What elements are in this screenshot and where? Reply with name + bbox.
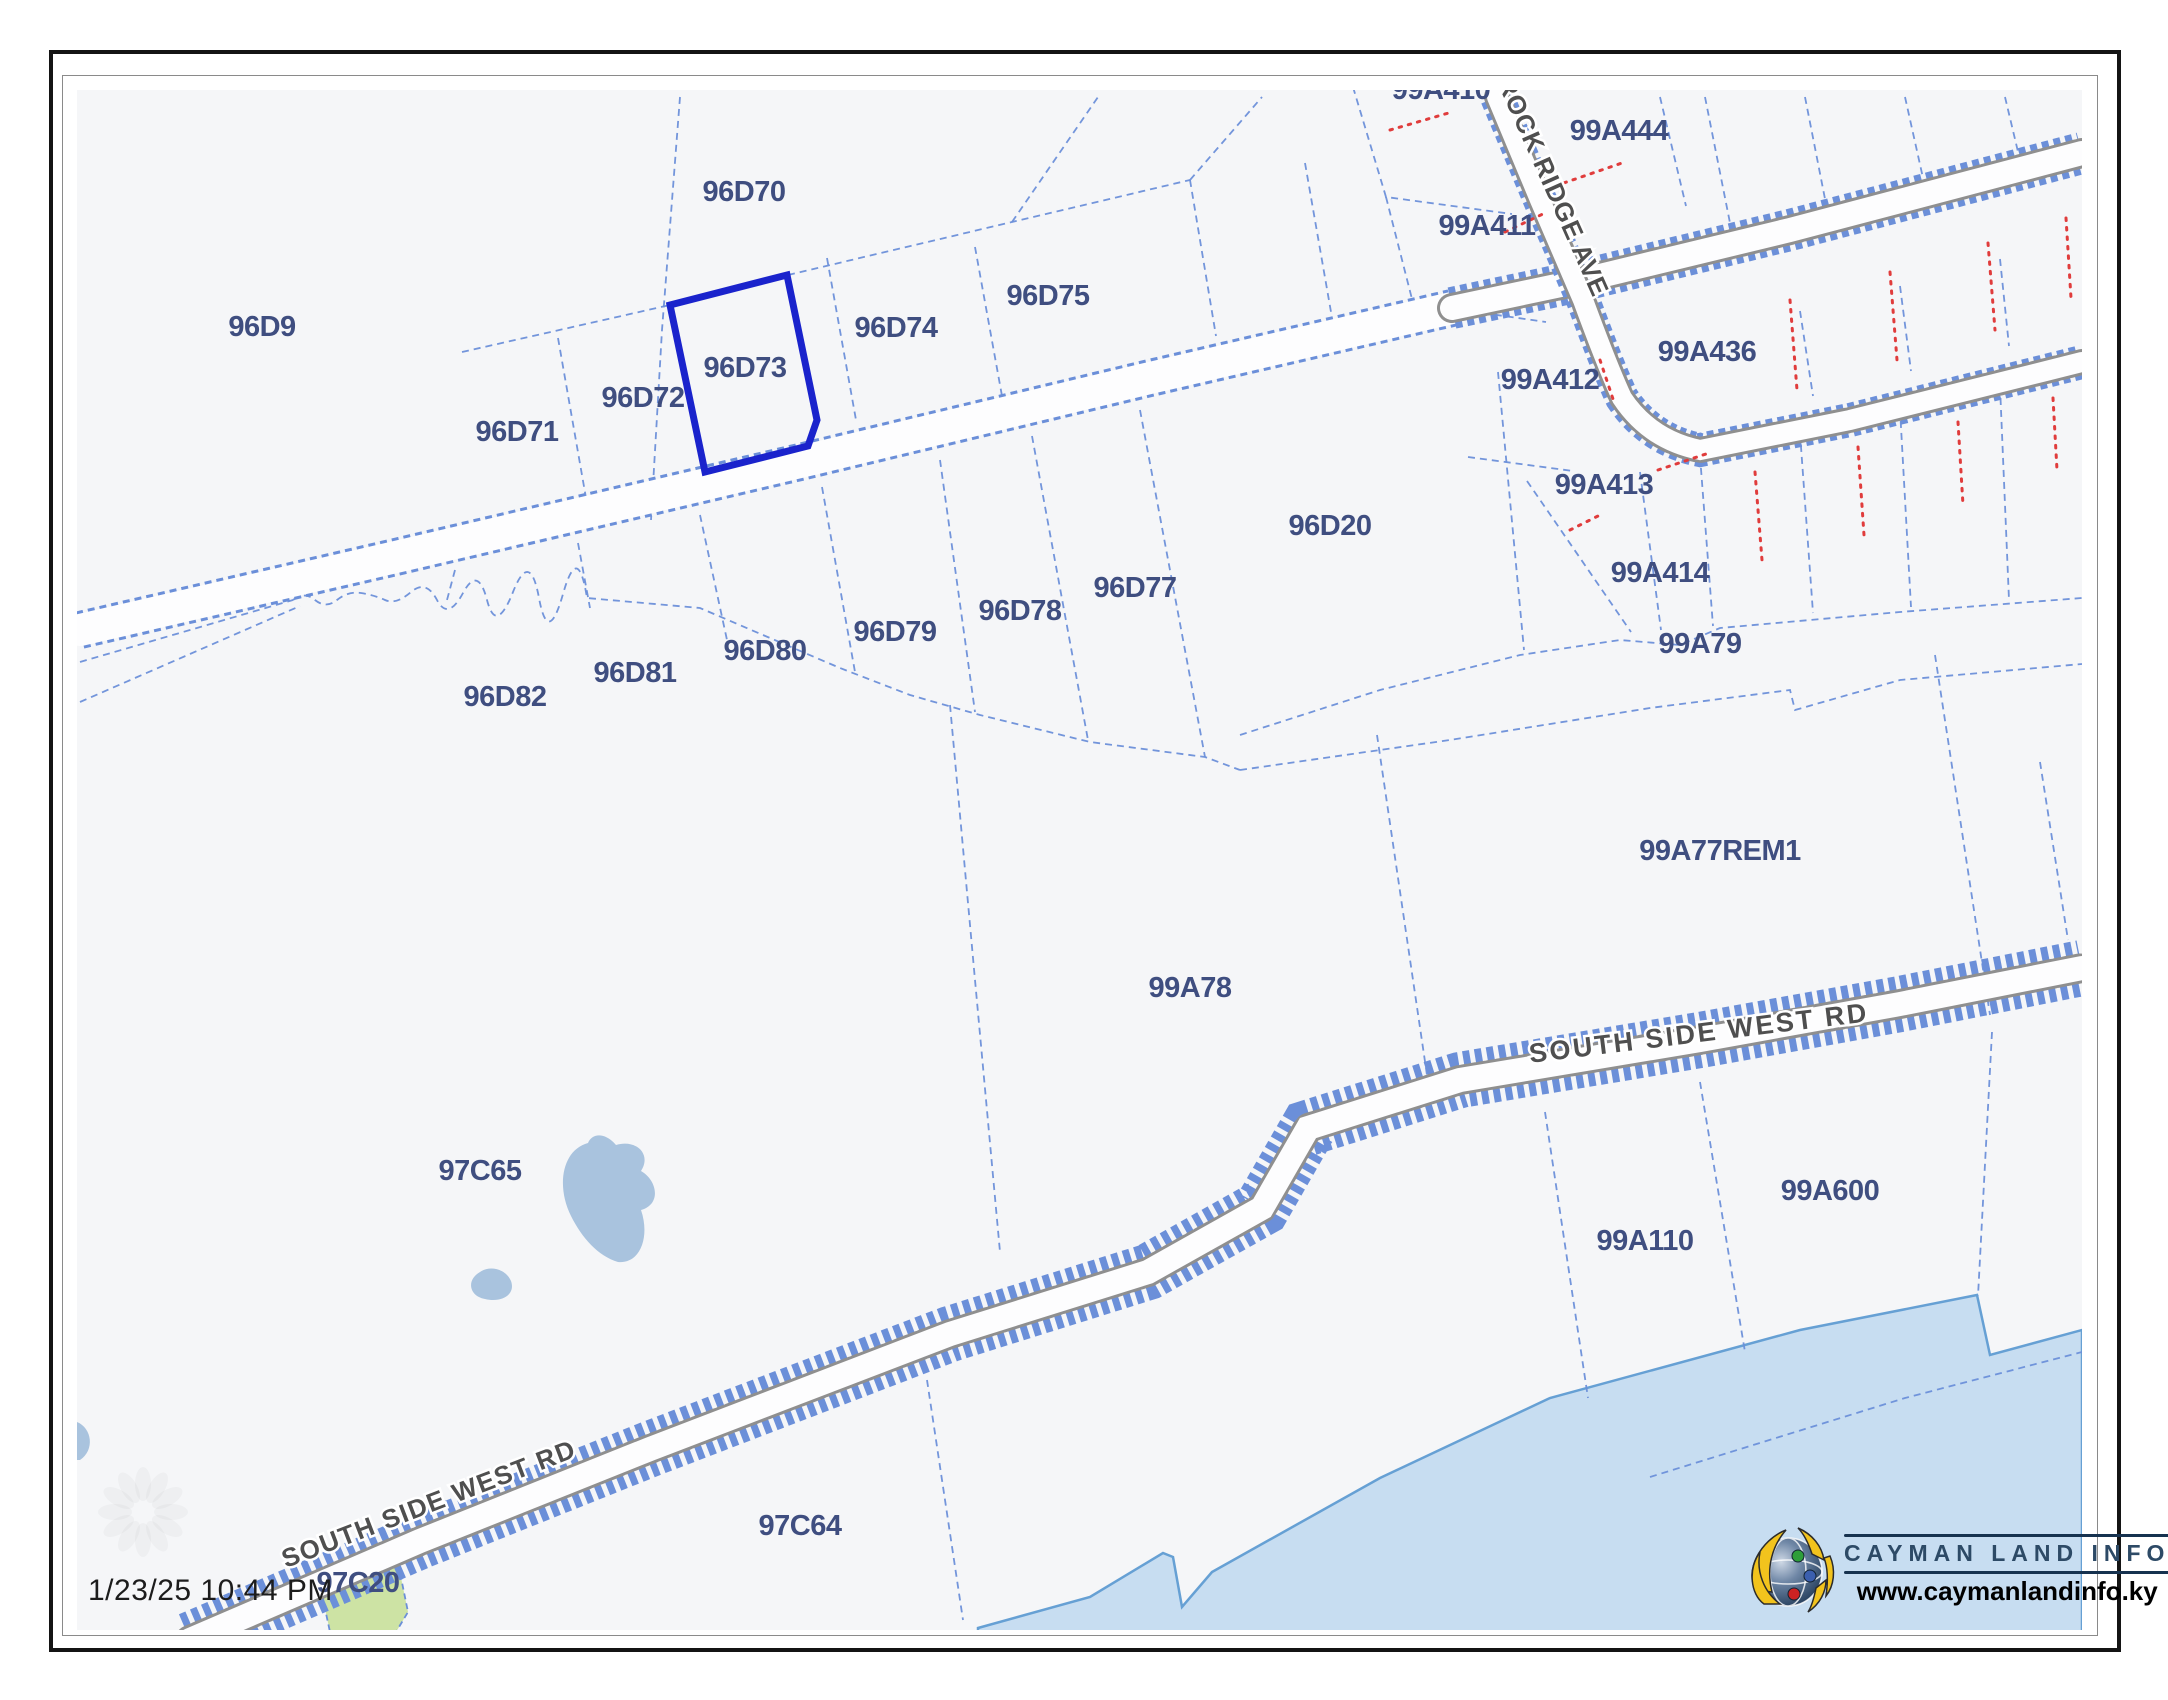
parcel-boundary	[1190, 180, 1216, 336]
parcel-label-96D74: 96D74	[855, 312, 938, 344]
pond	[563, 1135, 655, 1262]
parcel-label-99A411: 99A411	[1439, 210, 1536, 242]
parcel-label-96D71: 96D71	[476, 416, 559, 448]
map-timestamp: 1/23/25 10:44 PM	[88, 1574, 333, 1608]
parcel-label-96D9: 96D9	[228, 311, 296, 343]
parcel-boundary	[1240, 598, 2082, 735]
parcel-boundary	[1377, 735, 1428, 1082]
parcel-label-99A436: 99A436	[1658, 336, 1757, 368]
red-dotted-line	[1570, 515, 1600, 530]
logo-url[interactable]: www.caymanlandinfo.ky	[1844, 1574, 2168, 1607]
parcel-label-96D80: 96D80	[724, 635, 807, 667]
parcel-label-96D75: 96D75	[1007, 280, 1090, 312]
red-dotted-line	[1958, 422, 1963, 505]
parcel-label-99A414: 99A414	[1611, 557, 1710, 589]
parcel-boundary	[578, 543, 590, 608]
parcel-boundary	[1978, 1032, 1992, 1296]
parcel-label-99A412: 99A412	[1501, 364, 1600, 396]
parcel-boundary	[1012, 97, 1098, 222]
parcel-label-96D79: 96D79	[854, 616, 937, 648]
parcel-boundary	[950, 705, 1000, 1252]
globe-icon	[1742, 1520, 1838, 1620]
parcel-label-99A77REM1: 99A77REM1	[1639, 835, 1801, 867]
parcel-boundary	[2005, 97, 2019, 156]
parcel-label-96D81: 96D81	[594, 657, 677, 689]
parcel-label-96D82: 96D82	[464, 681, 547, 713]
red-dotted-line	[1988, 243, 1995, 330]
parcel-boundary	[1700, 456, 1713, 626]
red-dotted-line	[1790, 300, 1797, 390]
red-dotted-line	[1755, 472, 1762, 560]
parcel-boundary	[927, 1380, 963, 1620]
red-dotted-line	[2053, 398, 2057, 470]
parcel-label-96D78: 96D78	[979, 595, 1062, 627]
parcel-boundary	[558, 338, 586, 498]
red-dotted-line	[1890, 272, 1897, 360]
red-dotted-line	[1858, 447, 1864, 535]
pond	[471, 1269, 512, 1300]
parcel-boundary	[1190, 97, 1262, 180]
parcel-boundary	[1545, 1112, 1588, 1398]
parcel-label-96D77: 96D77	[1094, 572, 1177, 604]
parcel-boundary	[788, 180, 1190, 275]
red-dotted-line	[2066, 218, 2071, 298]
parcel-label-97C64: 97C64	[759, 1510, 842, 1542]
cadastral-map-viewport[interactable]: 96D996D7096D7196D7296D7396D7496D7596D209…	[77, 90, 2082, 1630]
parcel-boundary	[462, 305, 670, 352]
logo-title: CAYMAN LAND INFO	[1844, 1537, 2168, 1571]
parcel-boundary	[1800, 433, 1813, 613]
parcel-boundary	[1032, 436, 1088, 740]
parcel-boundary	[1805, 97, 1826, 204]
parcel-boundary	[1498, 372, 1524, 650]
parcel-label-96D20: 96D20	[1289, 510, 1372, 542]
parcel-boundary	[1800, 311, 1813, 396]
red-dotted-line	[1390, 112, 1452, 130]
parcel-label-99A600: 99A600	[1781, 1175, 1880, 1207]
parcel-label-99A444: 99A444	[1570, 115, 1669, 147]
parcel-boundary	[1305, 163, 1331, 312]
parcel-boundary	[1705, 97, 1731, 228]
parcel-boundary	[1900, 409, 1911, 607]
parcel-label-96D70: 96D70	[703, 176, 786, 208]
parcel-boundary	[1660, 97, 1686, 206]
parcel-map-canvas[interactable]: 96D996D7096D7196D7296D7396D7496D7596D209…	[77, 90, 2082, 1630]
parcel-boundary	[700, 515, 727, 640]
parcel-boundary	[1900, 286, 1911, 371]
parcel-label-99A79: 99A79	[1659, 628, 1742, 660]
parcel-boundary	[975, 247, 1002, 396]
parcel-label-99A413: 99A413	[1555, 469, 1654, 501]
pond	[77, 1422, 90, 1460]
parcel-boundary	[1905, 97, 1923, 178]
parcel-boundary	[822, 487, 855, 672]
parcel-boundary	[2000, 386, 2009, 600]
parcel-boundary	[1240, 664, 2082, 770]
parcel-boundary	[1700, 1082, 1745, 1352]
parcel-boundary	[827, 258, 856, 420]
parcel-boundary	[2000, 259, 2009, 346]
parcel-label-99A110: 99A110	[1597, 1225, 1694, 1257]
parcel-boundary	[447, 570, 455, 600]
parcel-label-99A410: 99A410	[1392, 90, 1491, 106]
parcel-label-96D73: 96D73	[704, 352, 787, 384]
parcel-label-96D72: 96D72	[602, 382, 685, 414]
parcel-boundary	[940, 460, 975, 712]
parcel-label-97C65: 97C65	[439, 1155, 522, 1187]
cayman-land-info-logo[interactable]: CAYMAN LAND INFO www.caymanlandinfo.ky	[1742, 1518, 2082, 1622]
parcel-boundary	[2040, 762, 2068, 940]
parcel-label-99A78: 99A78	[1149, 972, 1232, 1004]
